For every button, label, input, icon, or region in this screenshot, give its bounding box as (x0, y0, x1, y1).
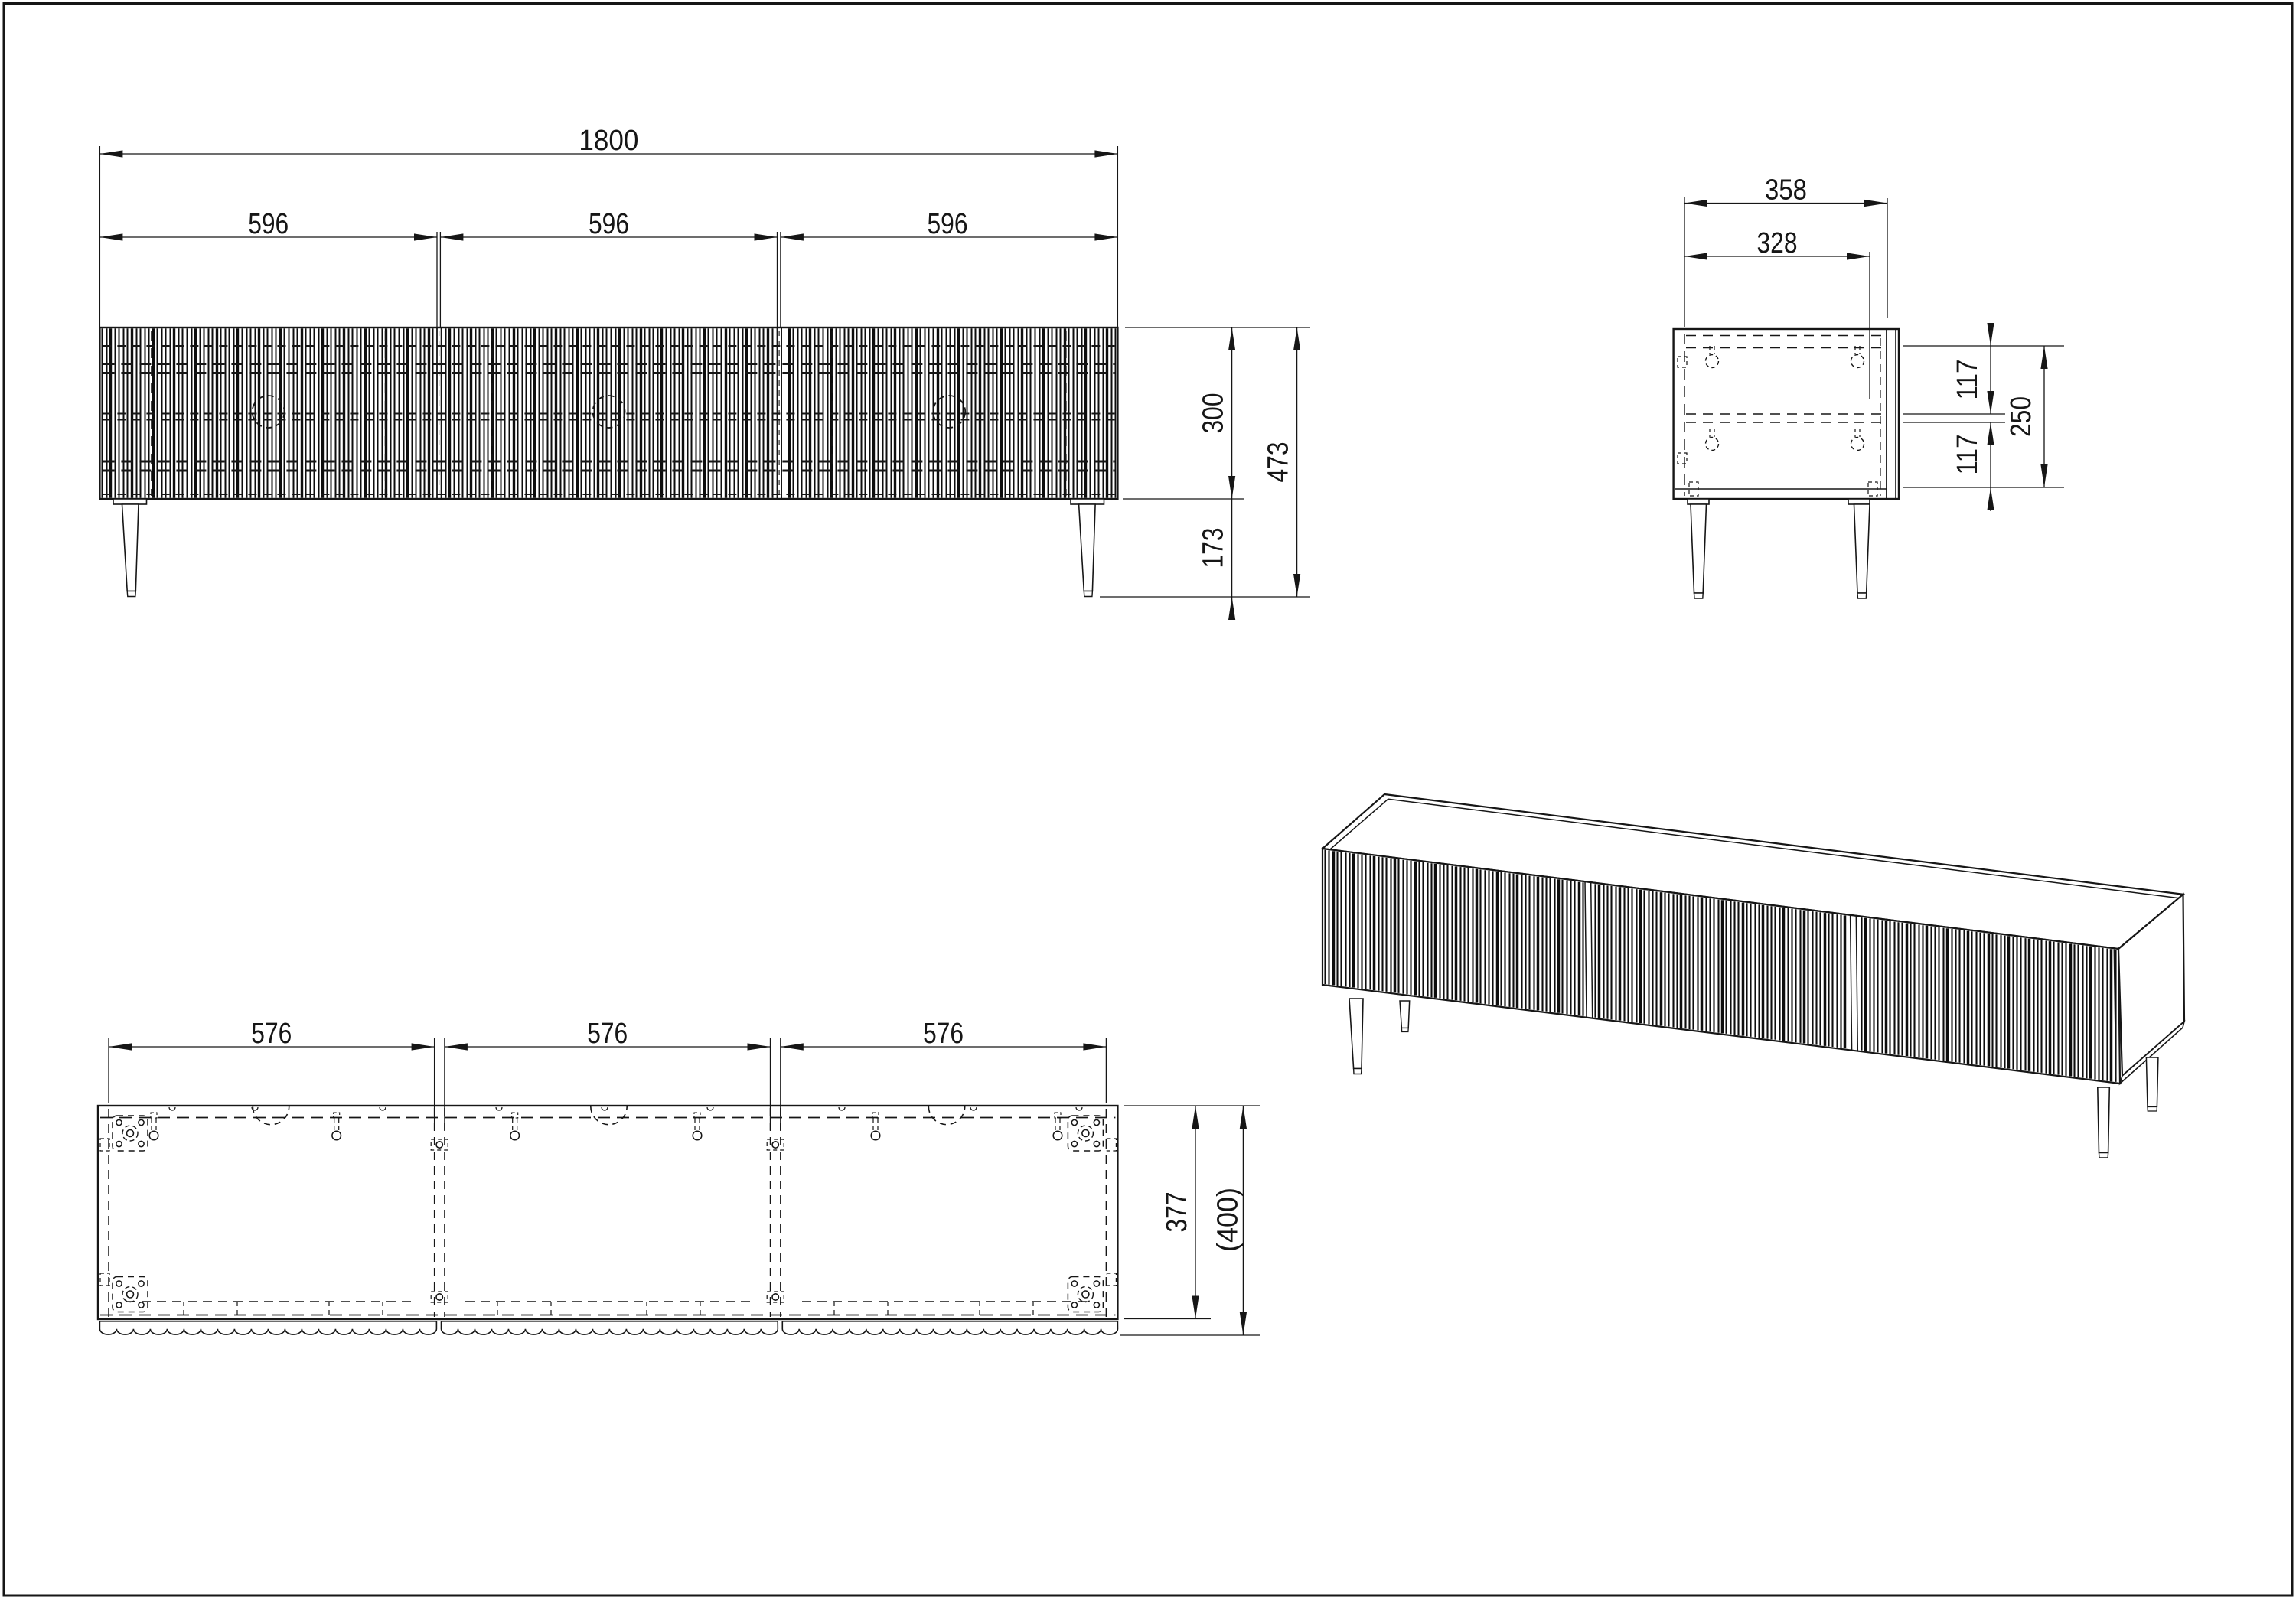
svg-text:576: 576 (251, 1018, 292, 1050)
svg-text:328: 328 (1757, 227, 1798, 259)
svg-text:596: 596 (928, 208, 968, 240)
svg-text:300: 300 (1198, 393, 1230, 434)
svg-text:576: 576 (923, 1018, 964, 1050)
svg-text:358: 358 (1765, 174, 1807, 207)
svg-text:473: 473 (1263, 442, 1295, 483)
svg-text:250: 250 (2005, 396, 2037, 437)
svg-text:117: 117 (1952, 435, 1984, 475)
svg-text:576: 576 (587, 1018, 628, 1050)
svg-text:117: 117 (1952, 360, 1984, 400)
svg-text:377: 377 (1161, 1192, 1193, 1233)
svg-text:173: 173 (1198, 528, 1230, 569)
svg-text:1800: 1800 (579, 125, 638, 157)
svg-text:596: 596 (589, 208, 629, 240)
svg-text:(400): (400) (1212, 1188, 1244, 1252)
svg-text:596: 596 (248, 208, 289, 240)
